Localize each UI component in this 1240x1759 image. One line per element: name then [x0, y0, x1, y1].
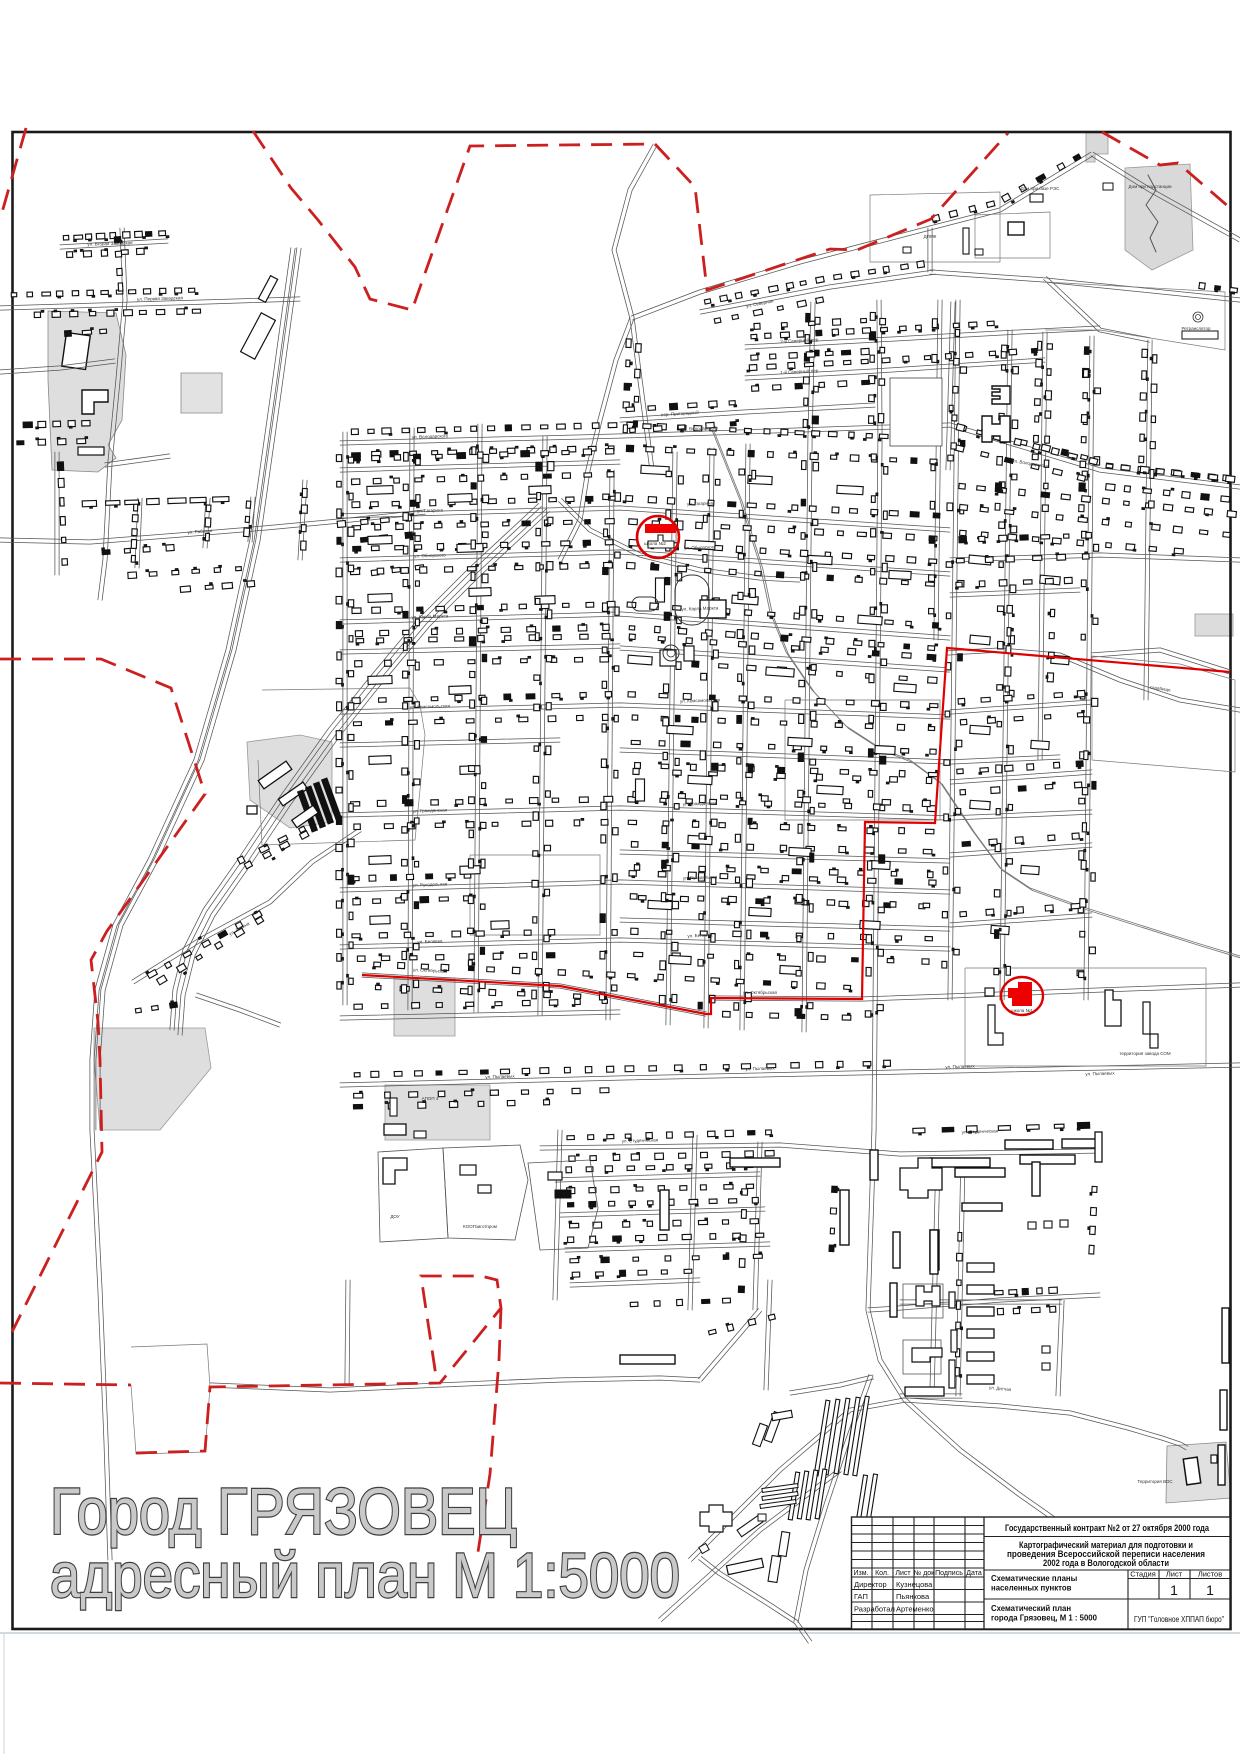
svg-text:1: 1 [1170, 1582, 1178, 1598]
svg-text:ДПМК: ДПМК [924, 234, 937, 239]
svg-text:Пьянкова: Пьянкова [896, 1592, 930, 1601]
svg-text:ул. Беляева: ул. Беляева [687, 933, 713, 939]
svg-text:КООПзаготпром: КООПзаготпром [463, 1224, 497, 1229]
svg-text:территория завода СОМ: территория завода СОМ [1119, 1051, 1171, 1056]
svg-text:№ док: № док [914, 1570, 935, 1577]
svg-text:Дата: Дата [966, 1570, 982, 1577]
svg-text:ул. Пылаевых: ул. Пылаевых [1085, 1070, 1115, 1076]
svg-text:Артеменко: Артеменко [896, 1605, 934, 1614]
svg-text:2002 года в Вологодской област: 2002 года в Вологодской области [1043, 1558, 1169, 1568]
svg-text:ул. Пылаевых: ул. Пылаевых [745, 1065, 775, 1071]
svg-text:Кол.: Кол. [875, 1570, 889, 1577]
svg-text:школа №2: школа №2 [644, 541, 666, 546]
svg-text:ул. Октябрьская: ул. Октябрьская [743, 990, 778, 995]
svg-text:Кузнецова: Кузнецова [896, 1580, 933, 1589]
svg-text:ул. Беляева: ул. Беляева [417, 939, 443, 945]
svg-text:Подпись: Подпись [935, 1570, 963, 1577]
svg-text:адресный план М 1:5000: адресный план М 1:5000 [50, 1541, 680, 1611]
svg-text:ул. Пылаевых: ул. Пылаевых [945, 1063, 975, 1069]
svg-text:Разработал: Разработал [854, 1605, 895, 1614]
svg-text:Лист: Лист [1166, 1570, 1183, 1579]
svg-text:Стадия: Стадия [1130, 1570, 1156, 1579]
svg-text:города Грязовец, М 1 : 5000: города Грязовец, М 1 : 5000 [991, 1614, 1098, 1623]
svg-text:Ретранслятор: Ретранслятор [1181, 326, 1211, 331]
svg-text:АПОП 4: АПОП 4 [422, 1096, 439, 1101]
svg-text:населенных пунктов: населенных пунктов [991, 1584, 1072, 1593]
svg-text:Лист: Лист [895, 1570, 911, 1577]
svg-text:Дом при подстанции: Дом при подстанции [1129, 184, 1172, 189]
svg-text:ГАП: ГАП [854, 1592, 868, 1601]
svg-text:1: 1 [1206, 1582, 1214, 1598]
svg-text:Схематические планы: Схематические планы [991, 1574, 1078, 1583]
svg-text:ул. Гагарина: ул. Гагарина [417, 508, 444, 514]
svg-text:ул. Пылаевых: ул. Пылаевых [485, 1073, 515, 1079]
svg-text:ГУП "Головное ХППАП бюро": ГУП "Головное ХППАП бюро" [1134, 1615, 1224, 1624]
svg-text:Дом при базе РЭС: Дом при базе РЭС [1021, 186, 1061, 191]
svg-text:Директор: Директор [854, 1580, 887, 1589]
svg-text:Листов: Листов [1198, 1570, 1222, 1579]
svg-text:ул. Гагарина: ул. Гагарина [687, 501, 714, 507]
svg-text:Схематический план: Схематический план [991, 1604, 1071, 1613]
svg-text:Государственный контракт №2 от: Государственный контракт №2 от 27 октябр… [1005, 1523, 1210, 1534]
svg-text:Изм.: Изм. [854, 1570, 869, 1577]
svg-text:ДОУ: ДОУ [390, 1214, 399, 1219]
svg-text:Территория ВОС: Территория ВОС [1137, 1479, 1173, 1484]
svg-text:Город ГРЯЗОВЕЦ: Город ГРЯЗОВЕЦ [50, 1474, 517, 1548]
svg-text:школа №1: школа №1 [1011, 1008, 1033, 1013]
